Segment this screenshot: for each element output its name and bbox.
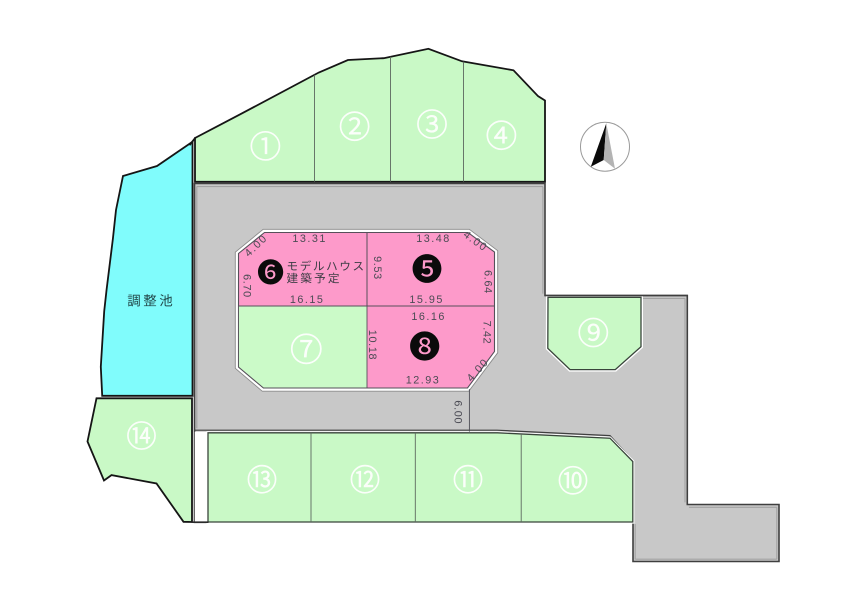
svg-text:6.70: 6.70 — [240, 274, 252, 298]
svg-text:7.42: 7.42 — [481, 321, 493, 345]
svg-text:13.31: 13.31 — [292, 233, 327, 245]
svg-text:9.53: 9.53 — [371, 256, 383, 280]
svg-text:12.93: 12.93 — [406, 374, 441, 386]
svg-text:16.16: 16.16 — [411, 311, 446, 323]
svg-text:13.48: 13.48 — [416, 233, 451, 245]
svg-text:15.95: 15.95 — [409, 294, 444, 306]
svg-text:10.18: 10.18 — [366, 330, 378, 361]
svg-text:6.64: 6.64 — [482, 270, 494, 294]
svg-text:16.15: 16.15 — [290, 294, 325, 306]
svg-text:6.00: 6.00 — [452, 400, 464, 424]
